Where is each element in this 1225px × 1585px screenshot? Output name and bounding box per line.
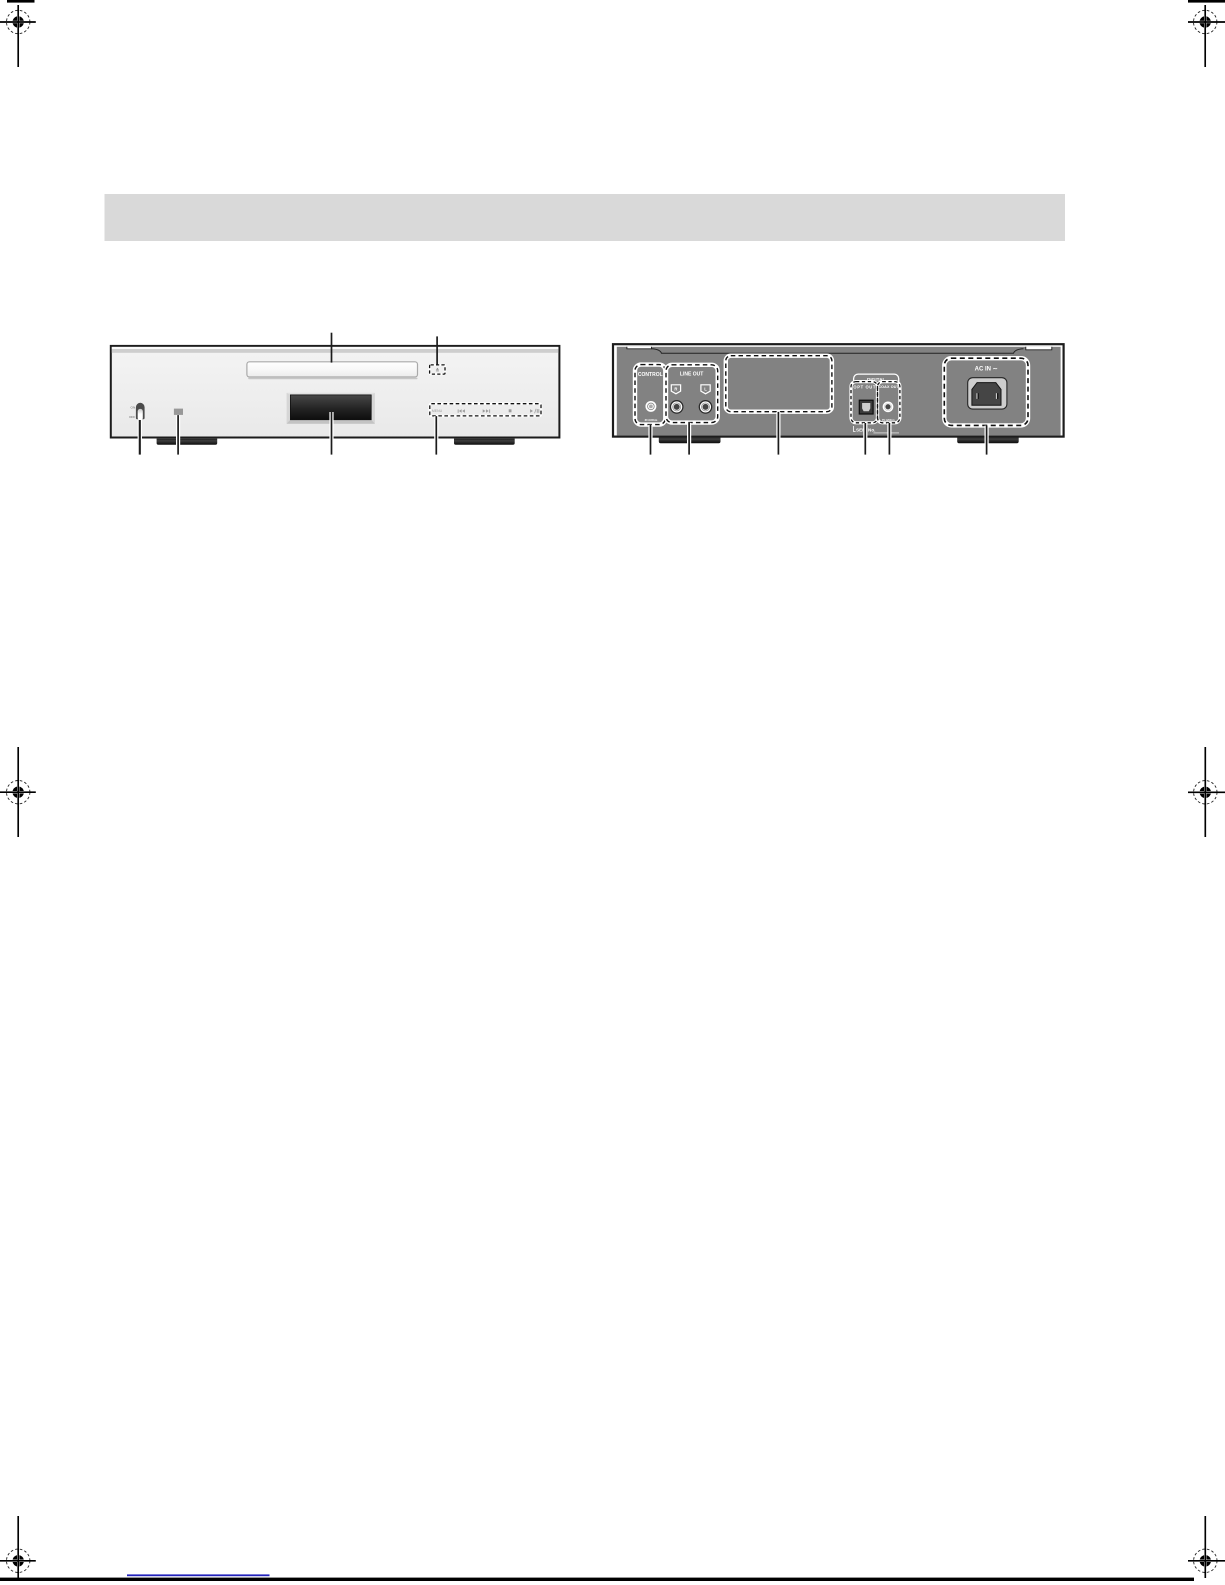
svg-text:75 Ω/Ohm: 75 Ω/Ohm — [882, 418, 895, 422]
svg-text:R: R — [674, 387, 677, 392]
svg-text:OFF: OFF — [129, 415, 135, 419]
svg-text:30 Ω/Ohm: 30 Ω/Ohm — [645, 418, 658, 422]
svg-text:AC IN ∼: AC IN ∼ — [975, 367, 998, 373]
svg-text:ON: ON — [131, 406, 136, 410]
svg-text:L: L — [704, 387, 707, 392]
svg-text:CONTROL: CONTROL — [638, 372, 663, 378]
svg-text:COAX OUT: COAX OUT — [878, 385, 899, 389]
svg-text:LINE OUT: LINE OUT — [680, 371, 703, 377]
svg-text:OPT OUT: OPT OUT — [853, 384, 875, 389]
svg-text:MENU: MENU — [432, 409, 443, 413]
